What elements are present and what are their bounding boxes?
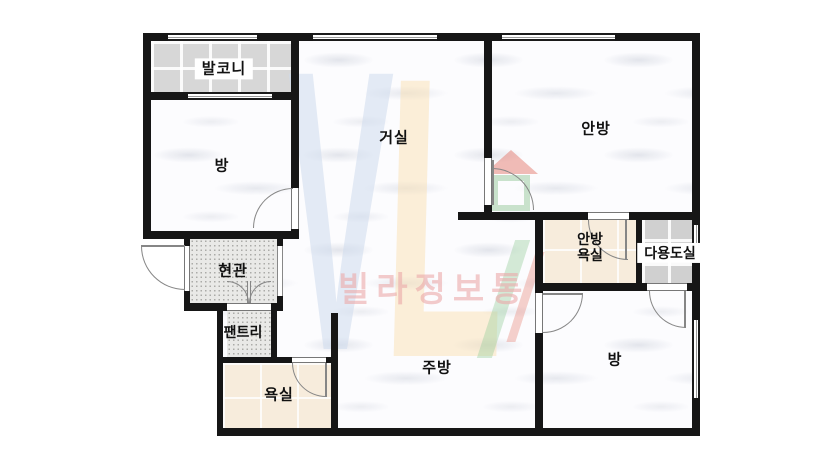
door-opening-entrance-double [227, 303, 271, 311]
wall-entrance-bottom [184, 303, 231, 311]
door-opening-master-bath [588, 212, 629, 220]
door-opening-room-br-left [535, 293, 543, 333]
window-balcony-top [168, 33, 257, 41]
door-opening-utility [647, 283, 687, 291]
label-utility-room: 다용도실 [637, 243, 703, 263]
door-leaf-room-br-left [543, 293, 583, 295]
window-room-br-right [692, 320, 700, 398]
label-pantry: 팬트리 [224, 324, 263, 340]
label-living-room: 거실 [379, 129, 409, 146]
door-opening-master [484, 158, 492, 205]
wall-master-bottom [458, 212, 700, 220]
door-leaf-master-bath [625, 220, 627, 260]
label-room-bottom-right: 방 [608, 351, 623, 368]
door-leaf-bathroom [325, 363, 327, 397]
door-leaf-double-right [250, 281, 251, 303]
label-bathroom: 욕실 [264, 386, 294, 403]
door-leaf-master [492, 160, 494, 205]
window-balcony-room [188, 92, 272, 100]
label-master-bathroom: 안방 욕실 [577, 231, 603, 263]
wall-room-tl-bottom [143, 231, 297, 239]
wall-left-lower [217, 307, 223, 436]
label-master-bathroom-line2: 욕실 [577, 247, 603, 263]
wall-bath-right [331, 313, 338, 428]
exterior-patch [184, 311, 217, 440]
opening-entrance-hall [277, 246, 283, 296]
door-leaf-utility [684, 291, 686, 328]
label-entrance: 현관 [218, 262, 248, 279]
floor-plan: V L 빌라정보통 [0, 0, 840, 472]
label-kitchen: 주방 [422, 359, 452, 376]
wall-hall-opening-stub-bottom [277, 296, 283, 311]
door-leaf-double-left [247, 281, 248, 303]
wall-hall-opening-stub-top [277, 232, 283, 246]
wall-pantry-right [271, 303, 277, 363]
window-master-top [502, 33, 615, 41]
wall-bottom [217, 428, 700, 436]
door-leaf-main-entrance [141, 245, 185, 247]
window-living-top [313, 33, 437, 41]
wall-left [143, 33, 151, 239]
label-room-top-left: 방 [215, 157, 230, 174]
label-master-bedroom: 안방 [581, 120, 611, 137]
label-master-bathroom-line1: 안방 [577, 231, 603, 247]
label-balcony: 발코니 [195, 58, 253, 79]
